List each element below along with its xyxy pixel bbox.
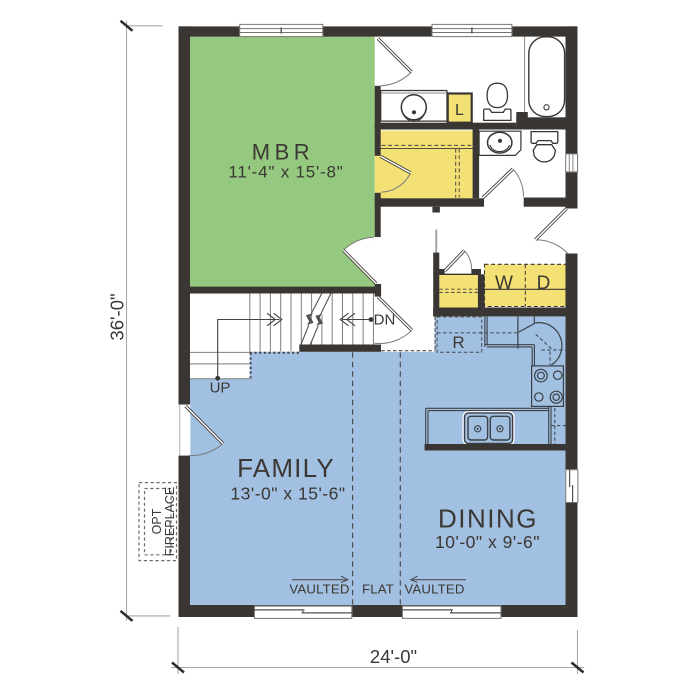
svg-text:UP: UP <box>210 380 231 397</box>
svg-text:VAULTED: VAULTED <box>404 582 464 597</box>
svg-text:24'-0": 24'-0" <box>370 646 417 667</box>
svg-text:D: D <box>537 273 551 294</box>
svg-text:FLAT: FLAT <box>362 582 394 597</box>
svg-text:MBR: MBR <box>252 140 314 165</box>
svg-text:13'-0" x 15'-6": 13'-0" x 15'-6" <box>230 484 345 504</box>
svg-text:W: W <box>495 273 513 294</box>
svg-text:FIREPLACE: FIREPLACE <box>163 487 177 556</box>
svg-text:VAULTED: VAULTED <box>289 582 349 597</box>
svg-text:OPT: OPT <box>150 508 164 534</box>
svg-text:FAMILY: FAMILY <box>237 453 335 483</box>
svg-text:DINING: DINING <box>438 504 538 534</box>
svg-text:R: R <box>452 333 464 352</box>
svg-text:36'-0": 36'-0" <box>106 293 127 340</box>
svg-text:DN: DN <box>374 312 396 329</box>
svg-text:11'-4" x 15'-8": 11'-4" x 15'-8" <box>228 163 343 182</box>
svg-text:L: L <box>455 102 464 119</box>
svg-text:10'-0" x 9'-6": 10'-0" x 9'-6" <box>435 532 540 552</box>
